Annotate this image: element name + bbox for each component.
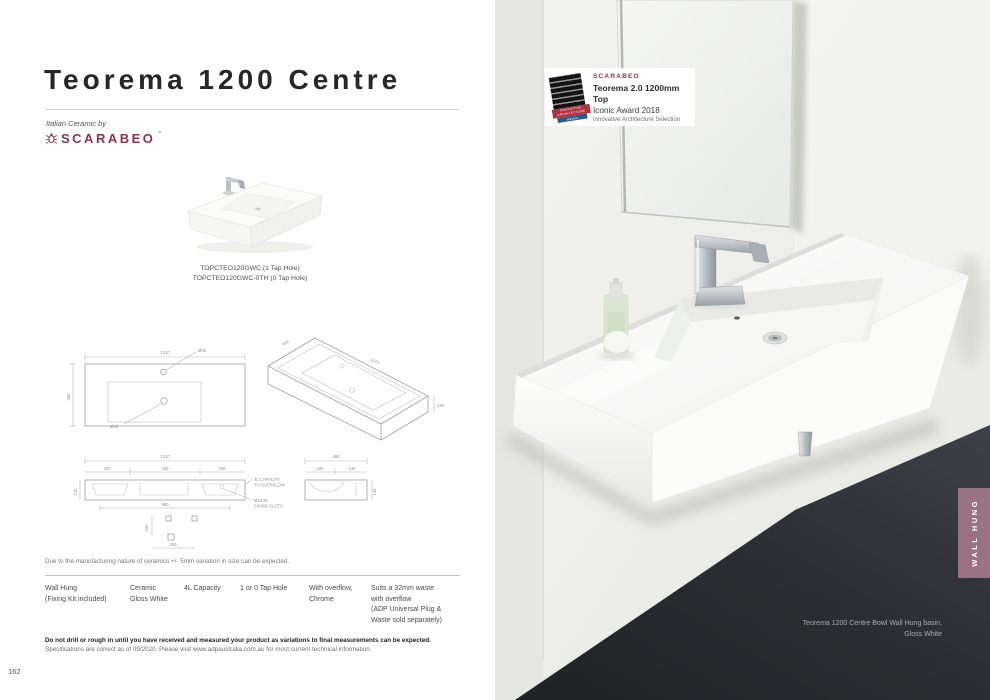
svg-text:4L CAPACITY: 4L CAPACITY [254,477,281,482]
svg-text:TO OVERFLOW: TO OVERFLOW [254,483,285,488]
product-codes: TOPCTEO120GWC (1 Tap Hole) TOPCTEO120GWC… [95,264,405,284]
svg-text:Ø35: Ø35 [198,348,207,353]
specifications-note: Specifications are correct as of 09/2020… [45,646,372,653]
svg-text:1210: 1210 [370,356,381,365]
brand-tagline: Italian Ceramic by [46,119,106,128]
title-divider [45,109,460,110]
tap-mixer-base [695,286,745,306]
product-code-2: TOPCTEO120GWC-0TH (0 Tap Hole) [95,274,405,284]
drain-center [773,337,778,339]
bottle-pump-top [613,278,619,284]
photo-caption-line2: Gloss White [803,630,942,641]
spec-material: Ceramic Gloss White [130,584,168,605]
product-photo-panel: INNOVATIVE ARCHITECTURE selection SCARAB… [495,0,990,700]
soap-bar [604,331,631,353]
spec-installation: Wall Hung (Fixing Kit included) [45,584,106,605]
page-title: Teorema 1200 Centre [44,64,401,96]
wall-highlight [795,0,990,280]
award-brand: SCARABEO [593,73,695,81]
svg-text:860: 860 [162,502,170,507]
category-tab-wall-hung: WALL HUNG [958,488,990,578]
svg-text:1210: 1210 [160,454,170,459]
iconic-awards-badge: INNOVATIVE ARCHITECTURE selection [547,72,591,121]
svg-text:140: 140 [437,403,445,408]
bottle-shadow [599,353,635,360]
size-disclaimer: Due to the manufacturing nature of ceram… [45,558,289,565]
overflow-hole [734,316,740,319]
catalog-left-page: Teorema 1200 Centre Italian Ceramic by S… [0,0,495,700]
award-overlay: INNOVATIVE ARCHITECTURE selection SCARAB… [545,68,695,126]
svg-text:Ø16.35: Ø16.35 [254,498,268,503]
svg-text:140: 140 [372,488,377,496]
product-thumbnail [170,163,335,261]
svg-text:460: 460 [333,454,341,459]
svg-text:320: 320 [104,466,112,471]
photo-caption: Teorema 1200 Centre Bowl Wall Hung basin… [803,619,942,640]
bottle-pump [610,283,622,297]
waste-pipe [798,432,812,456]
photo-caption-line1: Teorema 1200 Centre Bowl Wall Hung basin… [803,619,942,630]
svg-text:150: 150 [144,524,149,532]
drawing-side-view: 460 220 130 140 [305,454,377,500]
svg-text:140: 140 [73,488,78,496]
svg-text:220: 220 [317,466,325,471]
scarabeo-wordmark: SCARABEO [61,131,155,146]
svg-text:320: 320 [219,466,227,471]
page-number: 162 [8,667,21,676]
svg-text:1210: 1210 [160,350,170,355]
award-title: Iconic Award 2018 [593,106,695,116]
wall-corner-left [495,0,543,700]
scarab-icon [45,132,58,145]
award-category: Innovative Architecture Selection [593,117,695,125]
drawing-front-view: 1210 320 440 320 140 860 150 250 [73,454,285,548]
category-tab-label: WALL HUNG [970,499,979,567]
drill-warning-note: Do not drill or rough in until you have … [45,637,431,644]
svg-text:250: 250 [170,542,178,547]
spec-waste: Suits a 32mm waste with overflow (ADP Un… [371,584,466,626]
drawing-plan-view: 1210 460 Ø35 Ø46 [66,348,245,429]
scarabeo-logo: SCARABEO ° [45,131,161,146]
specs-divider [45,575,460,576]
svg-text:130: 130 [349,466,357,471]
spec-overflow: With overflow, Chrome [309,584,353,605]
scarabeo-trademark: ° [158,131,161,138]
drawing-isometric-view: 460 1210 140 [268,338,445,440]
award-text: SCARABEO Teorema 2.0 1200mm Top Iconic A… [593,73,695,124]
spec-tap-holes: 1 or 0 Tap Hole [240,584,287,595]
iconic-awards-badge-mark [549,73,586,110]
svg-text:FIXING SLOTS: FIXING SLOTS [254,504,283,509]
technical-drawings: 1210 460 Ø35 Ø46 460 1210 140 [40,328,460,563]
svg-text:Ø46: Ø46 [110,424,119,429]
award-product: Teorema 2.0 1200mm Top [593,83,695,104]
svg-text:440: 440 [162,466,170,471]
svg-text:460: 460 [66,393,71,401]
product-code-1: TOPCTEO120GWC (1 Tap Hole) [95,264,405,274]
spec-capacity: 4L Capacity [184,584,221,595]
svg-text:460: 460 [281,339,290,347]
